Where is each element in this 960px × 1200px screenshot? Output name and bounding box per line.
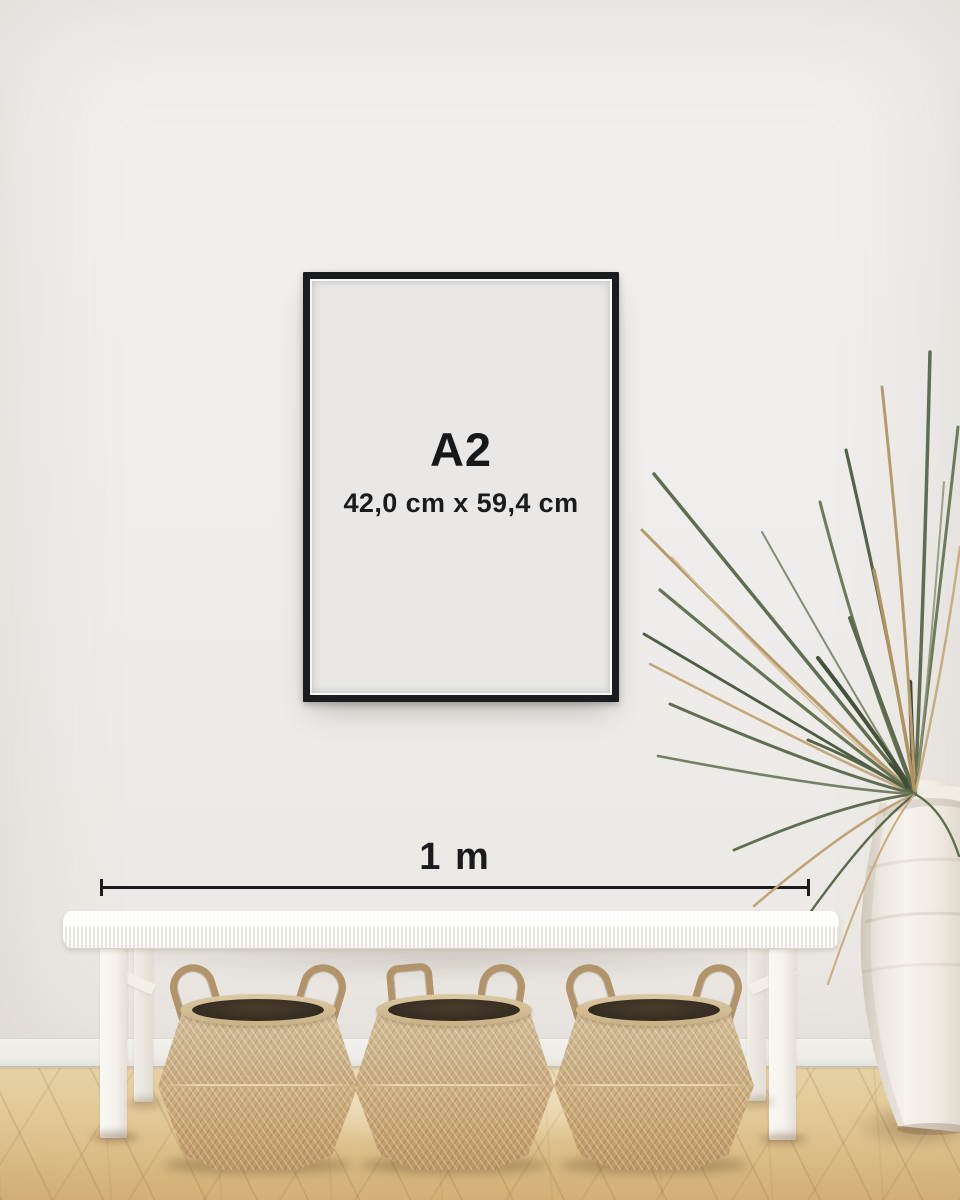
seagrass-basket-3 [554, 962, 754, 1174]
basket-rim-interior [388, 999, 520, 1021]
basket-body-lower [158, 1086, 358, 1170]
basket-rim [376, 994, 532, 1026]
basket-body-lower [354, 1086, 554, 1170]
poster-dimensions-label: 42,0 cm x 59,4 cm [344, 490, 579, 517]
poster-size-label: A2 [344, 426, 579, 473]
poster-text: A2 42,0 cm x 59,4 cm [344, 426, 579, 517]
palm-plant [612, 332, 960, 1022]
basket-rim [576, 994, 732, 1026]
seagrass-basket-2 [354, 962, 554, 1174]
basket-rim [180, 994, 336, 1026]
basket-rim-interior [588, 999, 720, 1021]
poster: A2 42,0 cm x 59,4 cm [310, 279, 612, 695]
poster-frame: A2 42,0 cm x 59,4 cm [303, 272, 619, 702]
size-guide-scene: A2 42,0 cm x 59,4 cm 1 m [0, 0, 960, 1200]
seagrass-basket-1 [158, 962, 358, 1174]
palm-fronds [642, 352, 960, 984]
basket-body-lower [554, 1086, 754, 1170]
scale-tick-left [100, 879, 103, 896]
basket-rim-interior [192, 999, 324, 1021]
